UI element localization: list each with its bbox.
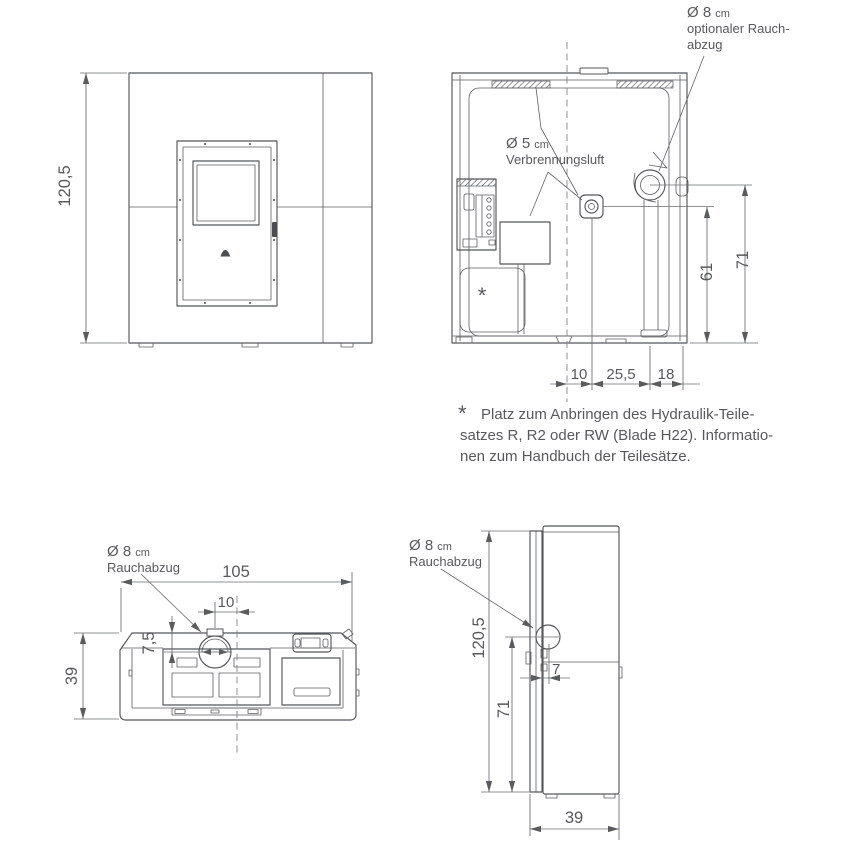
rear-body-outline — [452, 73, 687, 343]
air-label-line2: Verbrennungsluft — [506, 152, 605, 167]
side-height-dimension: 120,5 — [470, 531, 535, 792]
top-back-offset-dimension: 7,5 — [140, 616, 198, 668]
footnote-line3: nen zum Handbuch der Teilesätze. — [460, 448, 691, 465]
flue-collar — [207, 629, 223, 636]
air-diameter: Ø 5 — [506, 135, 530, 152]
rear-flue-diameter: Ø 8 — [687, 4, 711, 21]
footnote-marker: * — [458, 401, 467, 426]
side-body-outline — [543, 526, 619, 794]
svg-text:Ø 8cm: Ø 8cm — [107, 543, 150, 560]
side-flue-diameter: Ø 8 — [409, 537, 433, 554]
rear-vent-strip-left — [492, 81, 550, 88]
top-center-module — [163, 649, 270, 705]
rear-flue-label-line2: optionaler Rauch- — [687, 21, 790, 36]
side-flue-label-line2: Rauchabzug — [409, 554, 482, 569]
top-offset-dimension: 10 — [198, 594, 255, 628]
rear-dim-25-5: 25,5 — [606, 366, 635, 383]
stove-dimension-drawing: 120,5 * — [0, 0, 850, 850]
side-dim-height: 120,5 — [470, 617, 488, 658]
side-dim-39: 39 — [565, 809, 583, 827]
top-dim-39: 39 — [63, 667, 81, 685]
rear-right-clip — [676, 177, 688, 196]
air-unit: cm — [534, 139, 549, 151]
rear-vertical-dimensions: 61 71 — [603, 185, 758, 343]
front-window — [193, 161, 259, 225]
footnote-line2: satzes R, R2 oder RW (Blade H22). Inform… — [460, 427, 773, 444]
rear-top-tab — [580, 68, 608, 74]
top-flue-unit: cm — [135, 547, 150, 559]
top-hopper-lid — [282, 658, 340, 705]
door-hinge-lock — [272, 222, 277, 237]
top-dim-105: 105 — [222, 563, 250, 581]
side-view: 120,5 71 7 39 Ø 8cm Rauchabzug — [409, 526, 622, 840]
flame-logo-icon — [221, 250, 231, 257]
top-view: 105 10 7,5 39 Ø 8cm Rauchabzug — [63, 543, 359, 756]
side-flue-label: Ø 8cm Rauchabzug — [409, 537, 533, 628]
svg-text:Ø 8cm: Ø 8cm — [687, 4, 730, 21]
top-dim-7-5: 7,5 — [140, 632, 158, 655]
rear-dim-71: 71 — [734, 251, 752, 269]
rear-inner-panel — [469, 88, 669, 336]
footnote: * Platz zum Anbringen des Hydraulik-Teil… — [458, 401, 773, 465]
top-display-panel — [293, 634, 331, 652]
flue-bracket — [649, 152, 667, 168]
side-dim-7: 7 — [552, 661, 560, 678]
front-view: 120,5 — [56, 73, 372, 347]
rear-dim-61: 61 — [698, 263, 716, 281]
hydraulic-kit-asterisk: * — [478, 283, 487, 308]
front-door-frame-inner — [183, 147, 271, 300]
top-flue-diameter: Ø 8 — [107, 543, 131, 560]
svg-text:Ø 8cm: Ø 8cm — [409, 537, 452, 554]
rear-view: * — [452, 4, 790, 402]
hydraulic-kit-space: * — [460, 268, 525, 332]
rear-vent-strip-right — [617, 81, 673, 88]
rear-dim-18: 18 — [658, 366, 675, 383]
top-dim-10: 10 — [218, 594, 235, 611]
rear-feet — [456, 336, 626, 343]
side-flue-unit: cm — [437, 541, 452, 553]
rear-flue-outlet — [634, 152, 667, 337]
rear-horizontal-dimensions: 10 25,5 18 — [550, 218, 700, 390]
top-front-bar — [172, 708, 261, 715]
front-feet — [139, 343, 353, 347]
air-leader-left — [530, 172, 548, 216]
top-hinge-tab — [342, 629, 353, 639]
combustion-air-port — [580, 195, 603, 218]
technical-drawing-page: 120,5 * — [0, 0, 850, 850]
footnote-line1: Platz zum Anbringen des Hydraulik-Teile- — [481, 406, 754, 423]
side-depth-dimension: 39 — [530, 794, 619, 840]
rear-flue-label: Ø 8cm optionaler Rauch- abzug — [659, 4, 790, 171]
front-door-frame — [177, 141, 277, 306]
air-leader-right — [548, 172, 582, 200]
svg-text:Ø 5cm: Ø 5cm — [506, 135, 549, 152]
front-window-inner — [197, 165, 255, 221]
top-depth-dimension: 39 — [63, 633, 119, 719]
electrical-panel — [457, 179, 496, 250]
front-height-dimension: 120,5 — [56, 73, 127, 343]
top-flue-label-line2: Rauchabzug — [107, 560, 180, 575]
rear-flue-unit: cm — [715, 8, 730, 20]
side-dim-71: 71 — [495, 700, 513, 718]
rear-dim-10: 10 — [571, 366, 588, 383]
side-feet — [546, 794, 615, 798]
front-height-value: 120,5 — [56, 165, 74, 206]
rear-flue-label-line3: abzug — [687, 37, 722, 52]
pellet-chute — [500, 88, 578, 334]
